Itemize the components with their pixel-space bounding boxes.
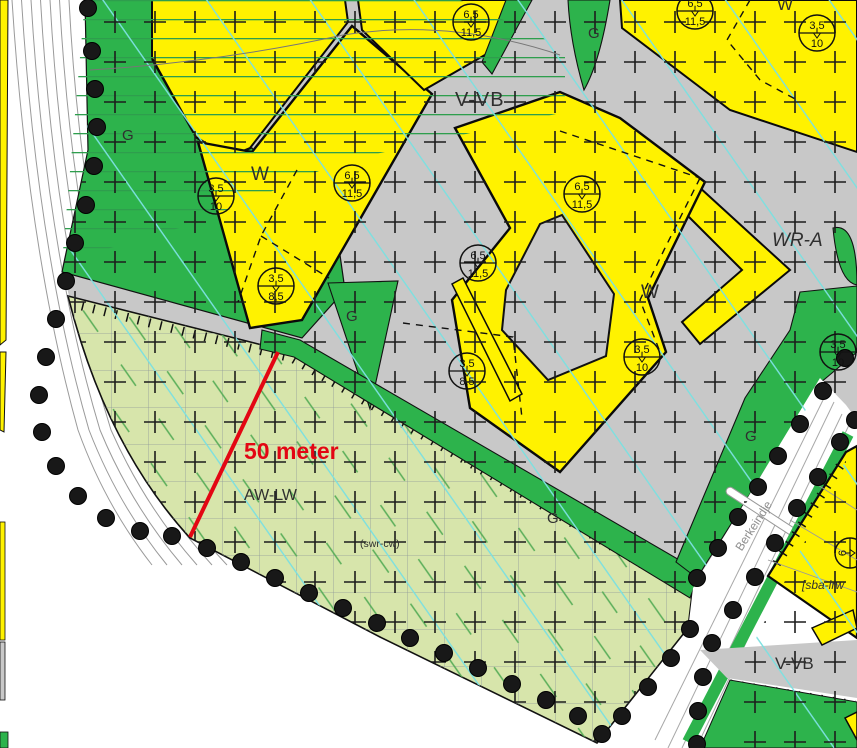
label-aw-lw: AW-LW (244, 487, 298, 504)
boundary-dot (792, 416, 809, 433)
boundary-dot (663, 650, 680, 667)
max-goothoogte: 6,5 (344, 170, 359, 182)
max-bouwhoogte: 11,5 (468, 268, 489, 280)
label-g-triangle: G (346, 308, 358, 325)
max-goothoogte: 3,5 (268, 273, 283, 285)
boundary-dot (87, 81, 104, 98)
boundary-dot (832, 434, 849, 451)
height-marker: 6,511,5 (453, 4, 489, 40)
measurement-label: 50 meter (244, 438, 339, 464)
boundary-dot (682, 621, 699, 638)
zoning-map-viewport[interactable]: 50 meter G G G G G W W W V-VB V-VB WR-A … (0, 0, 857, 748)
boundary-dot (594, 726, 611, 743)
boundary-dot (34, 424, 51, 441)
label-g-south-strip: G (547, 510, 559, 527)
boundary-dot (725, 602, 742, 619)
boundary-dot (164, 528, 181, 545)
max-goothoogte: 3,5 (830, 339, 845, 351)
height-marker: 3,58,5 (449, 353, 485, 389)
label-v-vb-bottom: V-VB (775, 654, 814, 673)
boundary-dot (335, 600, 352, 617)
boundary-dot (815, 383, 832, 400)
height-marker: 3,510 (198, 178, 234, 214)
label-g-east-strip: G (745, 428, 757, 445)
boundary-dot (689, 736, 706, 748)
boundary-dot (48, 311, 65, 328)
label-w-center: W (641, 282, 659, 303)
max-goothoogte: 6,5 (463, 9, 478, 21)
boundary-dot (80, 0, 97, 17)
label-swr-cw: (swr-cw) (360, 538, 400, 550)
boundary-dot (31, 387, 48, 404)
label-w-left: W (251, 164, 269, 185)
max-goothoogte: 3,5 (809, 20, 824, 32)
label-g-top-center: G (588, 25, 600, 42)
boundary-dot (504, 676, 521, 693)
boundary-dot (767, 535, 784, 552)
boundary-dot (86, 158, 103, 175)
boundary-dot (48, 458, 65, 475)
boundary-dot (78, 197, 95, 214)
max-bouwhoogte: 11,5 (572, 199, 593, 211)
max-goothoogte: 6,5 (687, 0, 702, 10)
max-goothoogte: 3,5 (459, 358, 474, 370)
boundary-dot (689, 570, 706, 587)
label-sba-lrw: [sba-lrw (801, 578, 845, 592)
zoning-map-canvas: 50 meter G G G G G W W W V-VB V-VB WR-A … (0, 0, 857, 748)
max-goothoogte: 6,5 (574, 181, 589, 193)
max-bouwhoogte: 10 (210, 201, 222, 213)
boundary-dot (770, 448, 787, 465)
boundary-dot (470, 660, 487, 677)
max-bouwhoogte: 8,5 (268, 291, 283, 303)
boundary-dot (614, 708, 631, 725)
max-goothoogte: 3,5 (634, 344, 649, 356)
boundary-dot (233, 554, 250, 571)
boundary-dot (38, 349, 55, 366)
height-marker: 6,511,5 (460, 245, 496, 281)
boundary-dot (640, 679, 657, 696)
height-marker: 3,510 (799, 15, 835, 51)
height-marker: 6,511,5 (564, 176, 600, 212)
boundary-dot (747, 569, 764, 586)
max-bouwhoogte: 11,5 (461, 27, 482, 39)
max-bouwhoogte: 11,5 (342, 188, 363, 200)
label-g-left: G (122, 127, 134, 144)
boundary-dot (750, 479, 767, 496)
boundary-dot (301, 585, 318, 602)
label-v-vb-top: V-VB (455, 89, 505, 111)
height-marker: 6,511,5 (334, 165, 370, 201)
boundary-dot (267, 570, 284, 587)
max-goothoogte: 6,5 (470, 250, 485, 262)
boundary-dot (84, 43, 101, 60)
boundary-dot (402, 630, 419, 647)
max-goothoogte: 6 (837, 550, 849, 556)
boundary-dot (570, 708, 587, 725)
boundary-dot (436, 645, 453, 662)
boundary-dot (58, 273, 75, 290)
boundary-dot (132, 523, 149, 540)
max-goothoogte: 3,5 (208, 183, 223, 195)
boundary-dot (199, 540, 216, 557)
boundary-dot (690, 703, 707, 720)
height-marker: 3,510 (624, 339, 660, 375)
label-wr-a: WR-A (772, 230, 823, 251)
boundary-dot (369, 615, 386, 632)
height-marker: 3,58,5 (258, 268, 294, 304)
boundary-dot (704, 635, 721, 652)
boundary-dot (538, 692, 555, 709)
label-w-top-right: W (777, 0, 793, 14)
boundary-dot (89, 119, 106, 136)
boundary-dot (789, 500, 806, 517)
max-bouwhoogte: 8,5 (459, 376, 474, 388)
max-bouwhoogte: 10 (832, 357, 844, 369)
boundary-dot (730, 509, 747, 526)
boundary-dot (710, 540, 727, 557)
boundary-dot (70, 488, 87, 505)
max-bouwhoogte: 10 (811, 38, 823, 50)
height-marker: 3,510 (820, 334, 856, 370)
boundary-dot (810, 469, 827, 486)
boundary-dot (98, 510, 115, 527)
max-bouwhoogte: 11,5 (685, 16, 706, 28)
max-bouwhoogte: 10 (636, 362, 648, 374)
boundary-dot (695, 669, 712, 686)
boundary-dot (67, 235, 84, 252)
